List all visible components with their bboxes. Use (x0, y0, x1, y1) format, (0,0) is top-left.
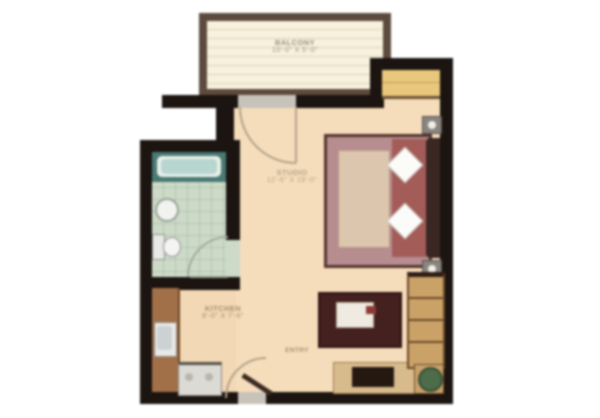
lamp (428, 121, 436, 129)
balcony-dimensions: 10'-0" X 5'-0" (207, 47, 383, 56)
entry-door-threshold (238, 392, 266, 404)
studio-name: STUDIO (232, 168, 352, 177)
wall-segment (140, 140, 152, 404)
nightstand (422, 116, 442, 134)
television (352, 367, 394, 387)
balcony-door-threshold (238, 95, 296, 108)
bed-duvet (338, 150, 390, 248)
balcony-name: BALCONY (207, 38, 383, 47)
closet-door-rail (382, 82, 440, 83)
bathroom-sink (155, 198, 179, 222)
stove-burner (185, 373, 193, 381)
entry-label: ENTRY (272, 347, 322, 355)
floor-plan-screenshot: BALCONY 10'-0" X 5'-0" (0, 0, 600, 418)
coffee-table-decor (366, 306, 376, 314)
closet (382, 70, 440, 99)
floor-plan: BALCONY 10'-0" X 5'-0" (0, 0, 600, 418)
kitchen-label: KITCHEN 8'-0" X 7'-6" (178, 304, 268, 322)
shelf (409, 319, 443, 321)
wall-segment (226, 140, 240, 240)
kitchen-name: KITCHEN (178, 304, 268, 313)
bed-headboard (426, 138, 440, 258)
shelf (409, 297, 443, 299)
stove-range (178, 362, 222, 396)
stove-burner (205, 373, 213, 381)
toilet-bowl (163, 237, 181, 257)
studio-label: STUDIO 12'-6" X 19'-0" (232, 168, 352, 186)
balcony-label: BALCONY 10'-0" X 5'-0" (207, 38, 383, 56)
bathtub-basin (161, 159, 217, 174)
kitchen-sink-basin (157, 326, 172, 350)
studio-dimensions: 12'-6" X 19'-0" (232, 177, 352, 186)
potted-plant (418, 367, 443, 392)
kitchen-dimensions: 8'-0" X 7'-6" (178, 313, 268, 322)
bathroom-doorway-floor (226, 240, 240, 277)
shelf (409, 341, 443, 343)
shelf-unit (407, 272, 445, 369)
